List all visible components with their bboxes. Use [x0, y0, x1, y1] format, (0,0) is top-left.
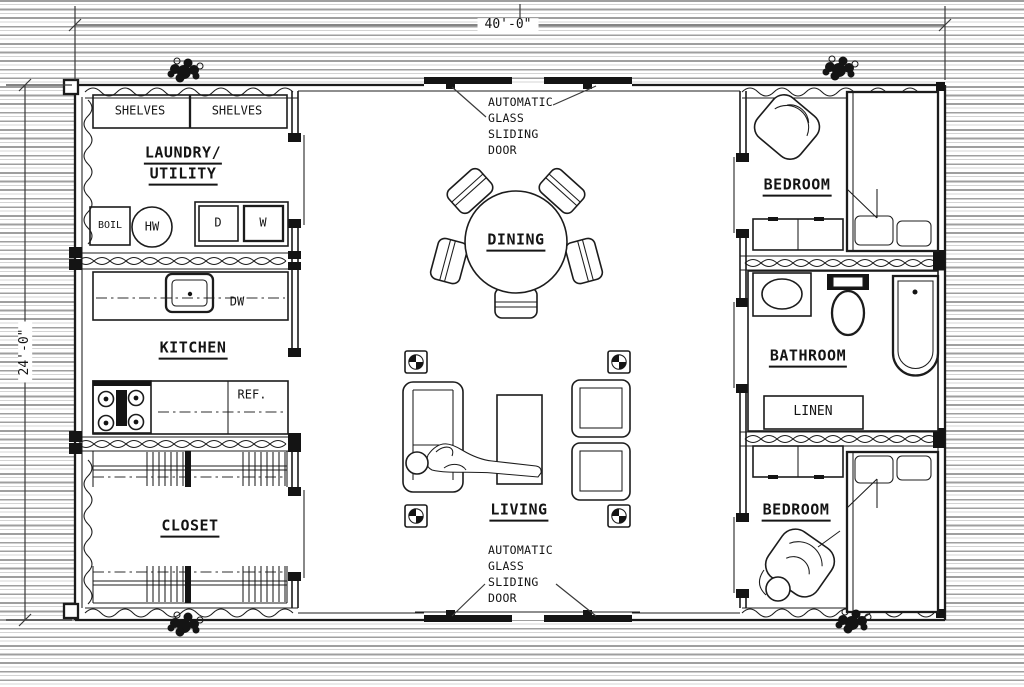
- linen-label: LINEN: [793, 405, 832, 419]
- top-door-label: AUTOMATIC GLASS SLIDING DOOR: [488, 94, 553, 158]
- corner-casting: [64, 604, 78, 618]
- room-label-living: LIVING: [489, 503, 548, 522]
- bottom-door-label-line4: DOOR: [488, 590, 553, 606]
- room-label-laundry-line2: UTILITY: [149, 167, 218, 186]
- drain: [913, 290, 918, 295]
- room-label-dining: DINING: [486, 233, 545, 252]
- bathtub: [893, 276, 938, 376]
- room-label-laundry-line1: LAUNDRY/: [144, 146, 222, 165]
- water-heater-label: HW: [145, 221, 159, 234]
- sofa: [403, 382, 463, 492]
- dimension-left: [6, 79, 72, 626]
- room-label-bedroom-bottom: BEDROOM: [762, 503, 831, 522]
- corner-casting: [64, 80, 78, 94]
- dryer-label: D: [214, 217, 221, 230]
- sink: [762, 279, 802, 309]
- boiler-label: BOIL: [98, 221, 122, 232]
- room-label-kitchen: KITCHEN: [159, 341, 228, 360]
- dimension-width-label: 40'-0": [478, 18, 539, 32]
- washer-label: W: [259, 217, 266, 230]
- bottom-door-label-line1: AUTOMATIC: [488, 542, 553, 558]
- top-door-label-line1: AUTOMATIC: [488, 94, 553, 110]
- bottom-door-label: AUTOMATIC GLASS SLIDING DOOR: [488, 542, 553, 606]
- shelves-left-label: SHELVES: [115, 105, 166, 118]
- refrigerator-label: REF.: [238, 389, 267, 402]
- top-door-label-line3: SLIDING: [488, 126, 553, 142]
- bush-icon: [168, 58, 204, 83]
- top-door-label-line2: GLASS: [488, 110, 553, 126]
- top-door-label-line4: DOOR: [488, 142, 553, 158]
- bush-icon: [823, 56, 859, 81]
- dimension-height-label: 24'-0": [18, 322, 32, 383]
- room-label-closet: CLOSET: [160, 519, 219, 538]
- floor-plan: 40'-0" 24'-0" SHELVES SHELVES LAUNDRY/ U…: [0, 0, 1024, 687]
- room-label-bedroom-top: BEDROOM: [763, 178, 832, 197]
- bottom-door-label-line2: GLASS: [488, 558, 553, 574]
- dishwasher-label: DW: [230, 296, 244, 309]
- shelves-right-label: SHELVES: [212, 105, 263, 118]
- bottom-door-label-line3: SLIDING: [488, 574, 553, 590]
- room-label-bathroom: BATHROOM: [769, 349, 847, 368]
